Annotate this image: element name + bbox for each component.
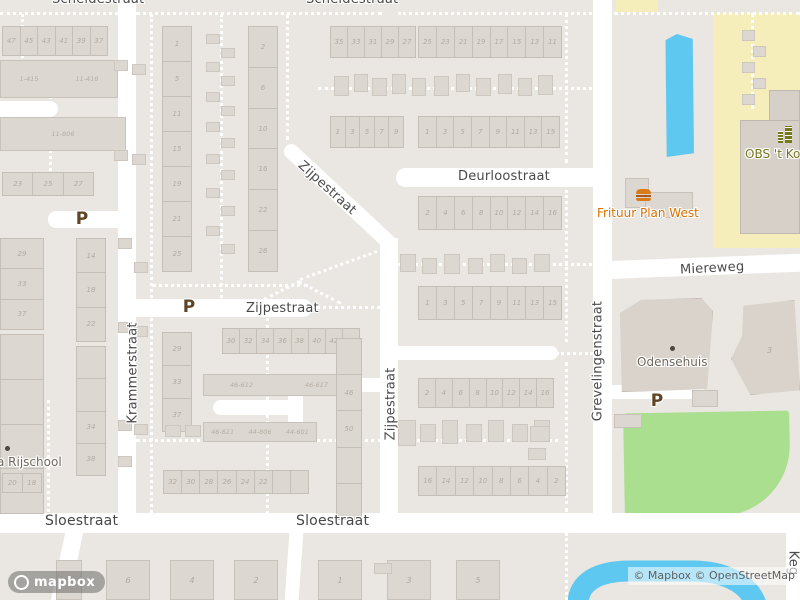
- house-number: 25: [33, 172, 63, 196]
- parking-marker: P: [651, 391, 663, 411]
- shed-building: [398, 420, 416, 446]
- house-number: 3: [346, 116, 361, 148]
- street-label-deurloostraat: Deurloostraat: [458, 169, 550, 184]
- house-number: 15: [508, 26, 526, 58]
- small-building: [614, 414, 642, 428]
- house-number: 13: [526, 286, 544, 320]
- house-column: 3438: [76, 346, 106, 476]
- house-number: 24: [237, 470, 255, 494]
- shed-building: [206, 188, 220, 198]
- shed-building: [221, 138, 235, 148]
- house-number: 2: [418, 196, 437, 230]
- shed-building: [456, 74, 470, 92]
- street-zigzag-c: [213, 400, 303, 415]
- shed-building: [490, 254, 505, 272]
- shed-building: [372, 78, 387, 96]
- house-number: 9: [389, 116, 404, 148]
- house-number: 8: [470, 378, 487, 408]
- shed-building: [512, 258, 527, 274]
- shed-building: [530, 426, 550, 442]
- house-number: 47: [2, 26, 21, 56]
- building-number: 3: [387, 560, 431, 600]
- odensehuis-building: [617, 298, 713, 392]
- house-number: 15: [162, 132, 192, 167]
- house-column: 151115192125: [162, 26, 192, 272]
- house-number: 6: [453, 378, 470, 408]
- house-number: 46: [336, 375, 362, 411]
- shed-building: [118, 456, 132, 467]
- house-number: 27: [399, 26, 416, 58]
- house-number: 34: [257, 328, 274, 354]
- apartment-building: 46-612 46-617: [203, 374, 355, 396]
- poi-label-frituur: Frituur Plan West: [597, 206, 699, 220]
- house-column: 141822: [76, 238, 106, 342]
- house-number: 19: [473, 26, 491, 58]
- shed-building: [476, 78, 491, 96]
- building-range-label: 11-416: [75, 75, 98, 83]
- house-column: 2610162226: [248, 26, 278, 272]
- street-label-zijpestraat-horizontal: Zijpestraat: [246, 301, 319, 316]
- shed-building: [221, 170, 235, 180]
- house-number: 20: [2, 473, 23, 493]
- shed-building: [206, 154, 220, 164]
- street-label-sloestraat-mid: Sloestraat: [296, 513, 369, 529]
- house-number: 2: [418, 378, 436, 408]
- house-number: 30: [182, 470, 200, 494]
- path: [565, 13, 568, 163]
- building-range-label: 46-611: [211, 428, 234, 436]
- shed-building: [434, 76, 449, 96]
- building-row: 642: [106, 560, 278, 600]
- building-range-label: 11-806: [51, 130, 74, 138]
- house-number: 32: [240, 328, 257, 354]
- apartment-building: 46-611 44-806 44-601: [203, 422, 317, 442]
- house-number: 7: [473, 286, 491, 320]
- house-number: 2: [248, 26, 278, 68]
- house-number: 23: [2, 172, 33, 196]
- school-grounds-patch: [616, 0, 658, 12]
- house-number: 34: [76, 412, 106, 444]
- shed-building: [444, 254, 460, 274]
- house-number: 31: [365, 26, 382, 58]
- shed-building: [392, 74, 406, 94]
- house-number: 7: [375, 116, 390, 148]
- shed-building: [466, 424, 482, 442]
- shed-building: [221, 48, 235, 58]
- shed-building: [132, 154, 146, 165]
- house-number: 12: [456, 466, 474, 496]
- house-number: [76, 379, 106, 411]
- apartment-building: 11-806: [0, 117, 126, 151]
- building-range-label: 1-415: [20, 75, 39, 83]
- house-number: [0, 380, 44, 425]
- shed-building: [400, 254, 416, 272]
- house-number: 15: [542, 116, 560, 148]
- small-building: [692, 390, 718, 407]
- shed-building: [742, 30, 755, 41]
- house-number: 25: [418, 26, 437, 58]
- poi-dot-odensehuis: [670, 346, 675, 351]
- water-area: [663, 34, 694, 157]
- path: [286, 14, 289, 140]
- house-number: 11: [507, 116, 525, 148]
- house-number: 13: [526, 26, 544, 58]
- house-number: 30: [222, 328, 240, 354]
- house-number: [76, 346, 106, 379]
- shed-building: [742, 94, 755, 105]
- house-number: 21: [162, 202, 192, 237]
- house-number: 10: [491, 196, 509, 230]
- shed-building: [134, 262, 148, 273]
- shed-building: [753, 46, 766, 57]
- house-row: 246810121416: [418, 196, 562, 230]
- house-number: 5: [455, 286, 473, 320]
- parking-marker: P: [76, 209, 88, 229]
- house-number: 16: [544, 196, 562, 230]
- house-number: 26: [218, 470, 236, 494]
- house-number: 10: [474, 466, 492, 496]
- house-number: 28: [200, 470, 218, 494]
- house-number: 22: [76, 308, 106, 342]
- house-row: 161412108642: [418, 466, 566, 496]
- house-row: 2523211917151311: [418, 26, 562, 58]
- street-stub-parking-west: [48, 211, 136, 228]
- street-label-zijpestraat-diagonal: Zijpestraat: [295, 158, 359, 218]
- house-column: 293337: [162, 332, 192, 432]
- shed-building: [528, 448, 546, 460]
- house-number: 11: [162, 97, 192, 132]
- house-number: 6: [248, 68, 278, 109]
- building-number: 2: [234, 560, 278, 600]
- house-row: 232527: [2, 172, 94, 196]
- shed-building: [132, 64, 146, 75]
- house-number: 37: [0, 300, 44, 330]
- shed-building: [206, 62, 220, 72]
- house-number: 21: [455, 26, 473, 58]
- house-number: 35: [330, 26, 348, 58]
- path: [0, 12, 118, 15]
- house-number: 27: [64, 172, 94, 196]
- poi-dot-rijschool: [5, 446, 10, 451]
- house-number: 39: [73, 26, 91, 56]
- house-number: 14: [76, 238, 106, 273]
- house-number: 38: [292, 328, 309, 354]
- house-number: 9: [490, 116, 508, 148]
- street-label-scheldestraat-mid: Scheldestraat: [306, 0, 398, 7]
- shed-building: [374, 563, 392, 574]
- shed-building: [420, 424, 436, 442]
- house-number: 22: [255, 470, 273, 494]
- house-row: 3533312927: [330, 26, 416, 58]
- shed-building: [518, 78, 532, 96]
- house-number: 25: [162, 237, 192, 272]
- shed-building: [134, 424, 148, 435]
- house-number: 38: [76, 444, 106, 476]
- building-number: 3: [767, 346, 772, 355]
- house-number: [273, 470, 291, 494]
- house-number: [336, 448, 362, 484]
- house-number: 11: [544, 26, 562, 58]
- path: [565, 190, 568, 342]
- map-attribution[interactable]: © Mapbox © OpenStreetMap: [628, 567, 800, 585]
- house-number: 22: [248, 190, 278, 231]
- building-range-label: 44-601: [286, 428, 309, 436]
- apartment-building: 1-415 11-416: [0, 60, 118, 98]
- building-3: [731, 300, 800, 395]
- street-sloestraat: [0, 513, 800, 533]
- house-row: 13579: [330, 116, 404, 148]
- house-number: [291, 470, 309, 494]
- building-number: 6: [106, 560, 150, 600]
- house-number: 50: [336, 411, 362, 447]
- house-column: 293337: [0, 238, 44, 330]
- house-row: 13579111315: [418, 116, 560, 148]
- shed-building: [498, 74, 512, 94]
- mapbox-logo[interactable]: mapbox: [8, 571, 105, 593]
- house-number: 3: [437, 286, 455, 320]
- path: [614, 12, 800, 15]
- house-number: 40: [309, 328, 326, 354]
- street-label-krammerstraat: Krammerstraat: [126, 322, 141, 423]
- house-number: 9: [491, 286, 509, 320]
- house-number: 14: [526, 196, 544, 230]
- house-number: 16: [418, 466, 437, 496]
- house-number: 36: [274, 328, 291, 354]
- house-number: 6: [511, 466, 529, 496]
- house-row: 2018: [2, 473, 42, 493]
- mapbox-logo-icon: [14, 575, 29, 590]
- street-krammerstraat: [118, 0, 136, 514]
- poi-label-odensehuis: Odensehuis: [637, 355, 707, 369]
- building-range-label: 46-612: [230, 381, 253, 389]
- shed-building: [185, 425, 201, 437]
- shed-building: [118, 238, 132, 249]
- path: [556, 352, 593, 355]
- building-range-label: 44-806: [248, 428, 271, 436]
- house-number: 29: [0, 238, 44, 269]
- house-row: 474543413937: [2, 26, 108, 56]
- house-number: 14: [437, 466, 455, 496]
- house-number: 16: [248, 149, 278, 190]
- shed-building: [538, 75, 553, 95]
- building-number: 4: [170, 560, 214, 600]
- path: [565, 533, 568, 600]
- shed-building: [422, 258, 437, 274]
- shed-building: [206, 122, 220, 132]
- house-number: 33: [162, 366, 192, 399]
- house-number: 12: [508, 196, 526, 230]
- street-grevelingenstraat: [593, 0, 612, 514]
- path: [150, 14, 153, 298]
- house-number: 16: [537, 378, 554, 408]
- house-number: 2: [548, 466, 566, 496]
- shed-building: [534, 254, 550, 272]
- house-number: 37: [91, 26, 109, 56]
- shed-building: [753, 78, 766, 89]
- shed-building: [354, 74, 368, 92]
- house-number: 10: [248, 109, 278, 150]
- street-label-miereweg: Miereweg: [680, 259, 745, 277]
- shed-building: [221, 244, 235, 254]
- house-row: 13579111315: [418, 286, 562, 320]
- street-south-gap: [285, 533, 304, 600]
- building-row: 135: [318, 560, 500, 600]
- shed-building: [468, 258, 483, 274]
- house-number: 4: [437, 196, 455, 230]
- school-building: [769, 90, 800, 124]
- path: [150, 318, 153, 513]
- house-number: 29: [382, 26, 399, 58]
- path: [398, 12, 592, 15]
- house-number: 32: [163, 470, 182, 494]
- shed-building: [165, 425, 181, 437]
- parking-marker: P: [183, 297, 195, 317]
- house-number: 11: [508, 286, 526, 320]
- building-number: 5: [456, 560, 500, 600]
- shed-building: [114, 60, 128, 71]
- house-number: 1: [418, 116, 437, 148]
- house-number: 15: [544, 286, 562, 320]
- house-number: 1: [418, 286, 437, 320]
- building-number: 1: [318, 560, 362, 600]
- house-number: 43: [38, 26, 56, 56]
- mapbox-logo-text: mapbox: [34, 575, 95, 590]
- shed-building: [206, 226, 220, 236]
- house-number: 18: [76, 273, 106, 307]
- path: [299, 246, 388, 281]
- poi-label-school: OBS 't Kofs: [745, 147, 800, 161]
- house-number: 26: [248, 231, 278, 272]
- path: [312, 306, 380, 309]
- house-number: 18: [23, 473, 43, 493]
- house-number: 1: [162, 26, 192, 62]
- house-number: 29: [162, 332, 192, 366]
- house-number: 17: [491, 26, 509, 58]
- shed-building: [334, 76, 349, 96]
- house-number: 41: [56, 26, 74, 56]
- park-area: [623, 411, 791, 518]
- house-number: 3: [437, 116, 455, 148]
- shed-building: [221, 106, 235, 116]
- shed-building: [221, 206, 235, 216]
- path: [136, 12, 382, 15]
- street-stub-midright: [394, 346, 558, 360]
- house-number: 14: [520, 378, 537, 408]
- house-number: 13: [525, 116, 543, 148]
- shed-building: [206, 34, 220, 44]
- house-number: 8: [493, 466, 511, 496]
- shed-building: [221, 76, 235, 86]
- house-number: 12: [503, 378, 520, 408]
- house-number: 45: [21, 26, 39, 56]
- house-number: [0, 334, 44, 380]
- shed-building: [206, 92, 220, 102]
- map-canvas[interactable]: 474543413937 1-415 11-416 11-806 232527 …: [0, 0, 800, 600]
- house-number: 5: [162, 62, 192, 97]
- shed-building: [512, 424, 528, 442]
- poi-label-rijschool: a Rijschool: [0, 455, 62, 469]
- burger-icon: [636, 189, 651, 202]
- shed-building: [442, 420, 458, 444]
- house-row: 246810121416: [418, 378, 554, 408]
- house-number: 4: [529, 466, 547, 496]
- house-number: 10: [487, 378, 504, 408]
- street-label-sloestraat-west: Sloestraat: [45, 513, 118, 529]
- street-label-scheldestraat-west: Scheldestraat: [52, 0, 144, 7]
- street-label-grevelingenstraat: Grevelingenstraat: [591, 301, 606, 421]
- building-range-label: 46-617: [305, 381, 328, 389]
- shed-building: [114, 150, 128, 161]
- house-number: 8: [473, 196, 491, 230]
- shed-building: [412, 78, 426, 96]
- house-number: 33: [0, 269, 44, 299]
- house-number: 1: [330, 116, 346, 148]
- school-icon: [778, 126, 793, 143]
- street-label-zijpestraat-vertical: Zijpestraat: [384, 368, 399, 441]
- house-number: 23: [437, 26, 455, 58]
- house-number: [336, 338, 362, 375]
- house-number: 6: [455, 196, 473, 230]
- house-number: 4: [436, 378, 453, 408]
- shed-building: [488, 420, 504, 442]
- house-number: 19: [162, 167, 192, 202]
- house-row: 323028262422: [163, 470, 309, 494]
- house-number: 7: [472, 116, 490, 148]
- shed-building: [742, 62, 755, 73]
- house-column: 4650: [336, 338, 362, 520]
- house-number: 33: [348, 26, 365, 58]
- house-number: 5: [454, 116, 472, 148]
- house-number: 5: [360, 116, 375, 148]
